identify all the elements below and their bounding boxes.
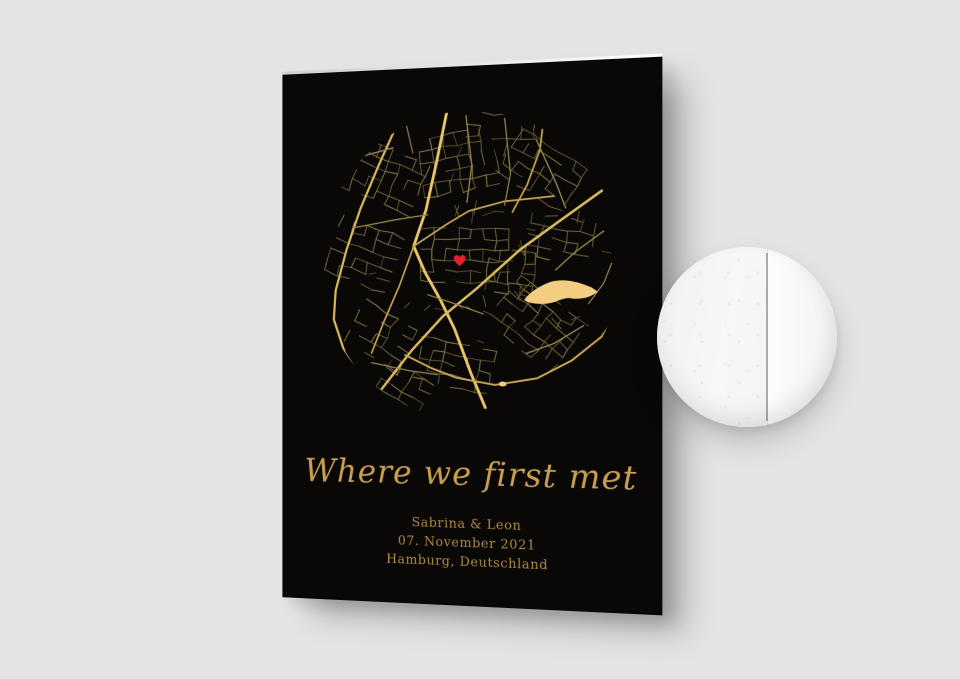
heart-marker-icon: [454, 255, 466, 266]
city-map: [316, 102, 623, 425]
poster-details: Sabrina & Leon 07. November 2021 Hamburg…: [282, 509, 662, 580]
pond-shape: [499, 382, 507, 387]
poster: Where we first met Sabrina & Leon 07. No…: [282, 57, 662, 616]
street-network: [325, 107, 611, 415]
poster-title: Where we first met: [282, 450, 662, 498]
lake-shape: [524, 280, 597, 304]
main-roads: [328, 105, 614, 417]
product-photo: Where we first met Sabrina & Leon 07. No…: [0, 0, 960, 679]
material-detail-circle: [657, 247, 837, 427]
swatch-shading: [657, 247, 837, 427]
